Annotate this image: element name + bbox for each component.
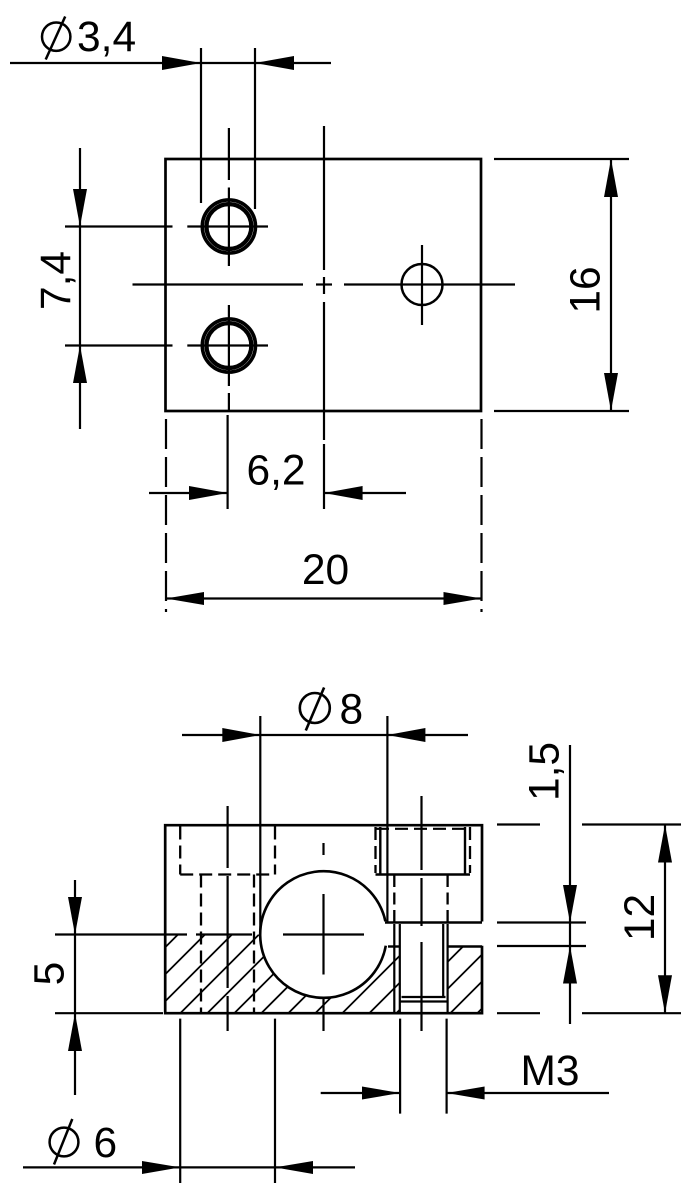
- svg-text:20: 20: [302, 547, 349, 594]
- svg-text:5: 5: [27, 962, 74, 986]
- svg-text:3,4: 3,4: [77, 14, 136, 61]
- svg-text:12: 12: [617, 894, 664, 941]
- svg-text:M3: M3: [520, 1048, 579, 1095]
- svg-text:6,2: 6,2: [246, 448, 305, 495]
- svg-text:6: 6: [94, 1120, 118, 1167]
- svg-text:1,5: 1,5: [522, 742, 569, 801]
- svg-text:8: 8: [340, 687, 364, 734]
- svg-text:16: 16: [563, 266, 610, 313]
- svg-text:7,4: 7,4: [33, 251, 80, 310]
